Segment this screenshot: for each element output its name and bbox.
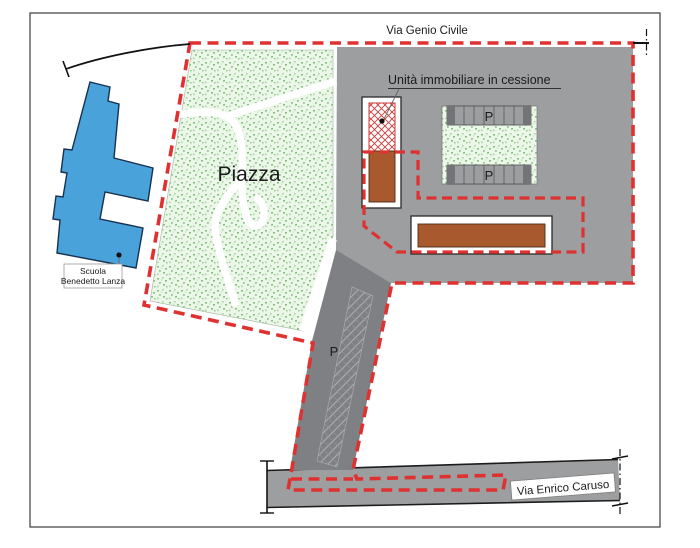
unit-dot xyxy=(379,118,384,123)
parking-row-bottom-cap-left xyxy=(447,165,455,184)
parking-row-top-cap-left xyxy=(447,106,455,125)
site-plan-canvas: Scuola Benedetto Lanza P P Unità immobil… xyxy=(0,0,700,548)
access-road-p-label: P xyxy=(330,344,339,359)
parking-row-top-cap-right xyxy=(523,106,531,125)
parking-p-top: P xyxy=(485,109,494,124)
site-plan: Scuola Benedetto Lanza P P Unità immobil… xyxy=(0,0,700,548)
long-building-brown xyxy=(418,224,545,247)
unit-label: Unità immobiliare in cessione xyxy=(388,73,551,87)
parking-p-bottom: P xyxy=(485,168,494,183)
school-dot xyxy=(116,252,121,257)
via-genio-civile-label: Via Genio Civile xyxy=(386,25,468,37)
school-label-line1: Scuola xyxy=(80,266,106,276)
school-label-line2: Benedetto Lanza xyxy=(61,276,126,286)
unit-building-brown-part xyxy=(369,151,395,202)
parking-lot: P P xyxy=(442,106,537,184)
long-building xyxy=(411,216,552,254)
unit-building-hatched-part xyxy=(369,103,395,151)
parking-row-bottom-cap-right xyxy=(523,165,531,184)
piazza-label: Piazza xyxy=(217,163,280,186)
